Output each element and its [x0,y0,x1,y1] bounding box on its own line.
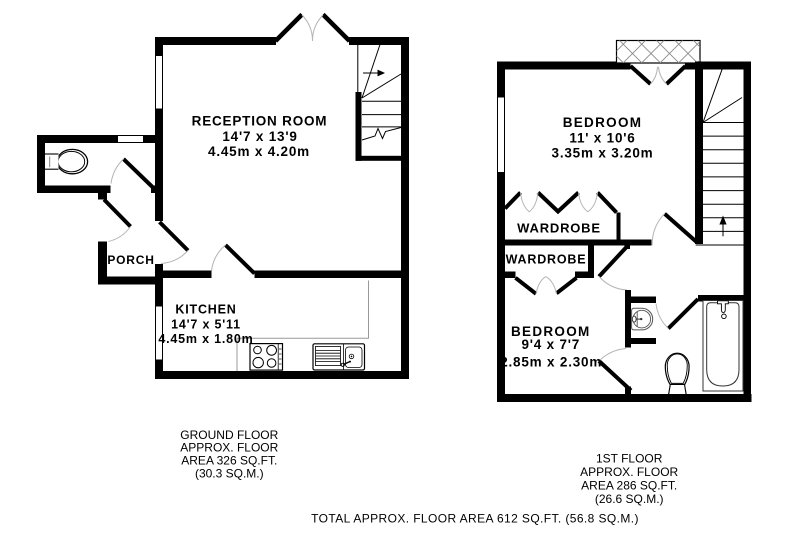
svg-text:4.45m x 1.80m: 4.45m x 1.80m [158,332,253,346]
svg-text:11' x 10'6: 11' x 10'6 [569,130,635,145]
svg-text:AREA 286 SQ.FT.: AREA 286 SQ.FT. [581,479,677,493]
svg-text:1ST FLOOR: 1ST FLOOR [596,452,663,466]
svg-text:4.45m x 4.20m: 4.45m x 4.20m [208,144,310,159]
svg-text:BEDROOM: BEDROOM [563,115,643,130]
svg-text:WARDROBE: WARDROBE [517,221,601,236]
svg-text:TOTAL APPROX. FLOOR AREA 612 S: TOTAL APPROX. FLOOR AREA 612 SQ.FT. (56.… [311,512,639,526]
svg-text:9'4 x 7'7: 9'4 x 7'7 [521,337,580,352]
svg-text:RECEPTION ROOM: RECEPTION ROOM [192,113,328,128]
svg-text:WARDROBE: WARDROBE [506,253,587,267]
svg-text:14'7 x 5'11: 14'7 x 5'11 [171,317,241,331]
svg-text:AREA 326 SQ.FT.: AREA 326 SQ.FT. [181,454,277,468]
svg-text:2.85m x 2.30m: 2.85m x 2.30m [500,355,602,370]
svg-text:(30.3 SQ.M.): (30.3 SQ.M.) [195,466,264,480]
svg-text:APPROX. FLOOR: APPROX. FLOOR [580,465,678,479]
svg-text:GROUND FLOOR: GROUND FLOOR [180,428,278,442]
svg-text:14'7 x 13'9: 14'7 x 13'9 [222,129,297,144]
svg-text:KITCHEN: KITCHEN [175,303,236,317]
svg-text:(26.6 SQ.M.): (26.6 SQ.M.) [595,492,664,506]
svg-text:3.35m x 3.20m: 3.35m x 3.20m [552,146,654,161]
svg-text:PORCH: PORCH [107,253,154,267]
